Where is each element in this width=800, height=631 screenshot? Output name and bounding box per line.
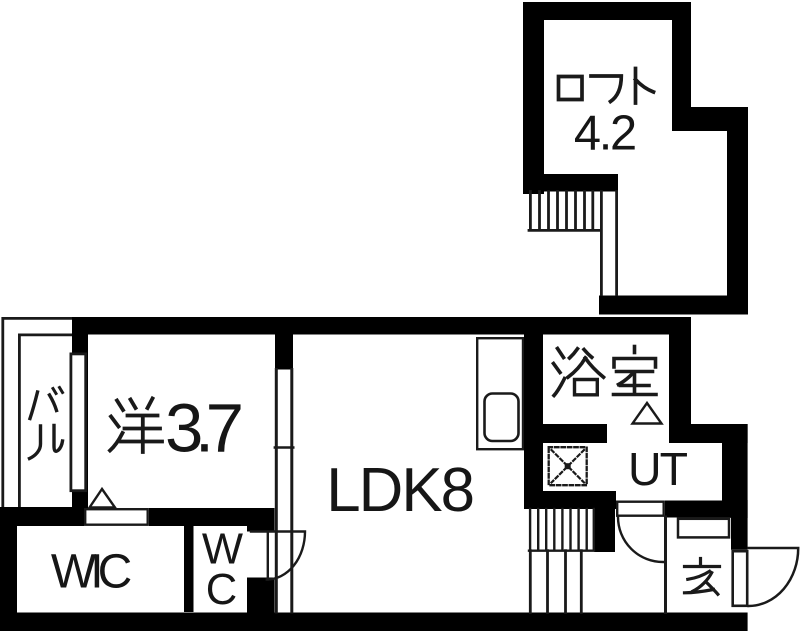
svg-text:WIC: WIC bbox=[51, 545, 133, 598]
svg-text:LDK8: LDK8 bbox=[326, 456, 475, 525]
svg-text:3.7: 3.7 bbox=[165, 390, 244, 467]
svg-text:UT: UT bbox=[628, 443, 688, 495]
svg-text:4.2: 4.2 bbox=[574, 107, 637, 161]
svg-text:C: C bbox=[206, 566, 237, 614]
